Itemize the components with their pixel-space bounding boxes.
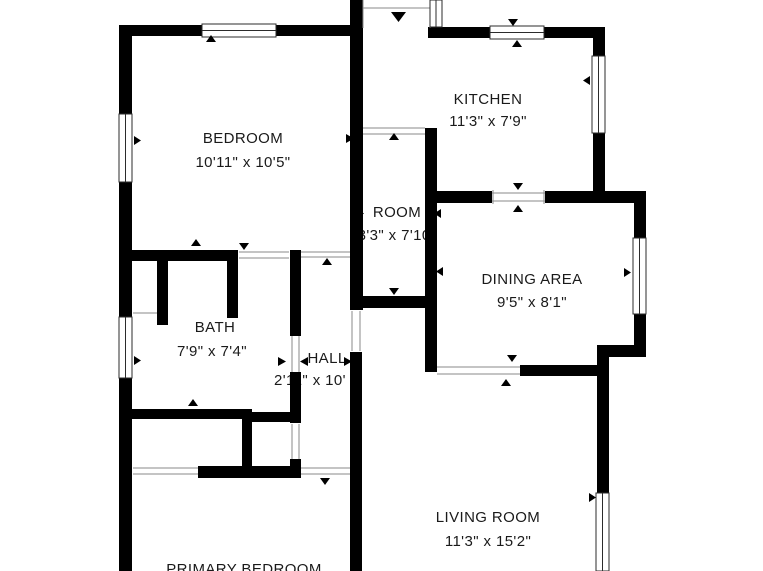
kitchen-dining-arrow-down [513,183,523,190]
wall-living-right [597,345,609,494]
wall-room-bottom [350,296,437,308]
opening-closet-door [292,424,299,459]
bath-bottom-arrow-up [188,399,198,406]
opening-bedroom-hall [301,250,350,259]
opening-hall-living-door [352,311,360,351]
opening-dining-living [437,367,520,374]
wall-closet-bottom [198,466,301,478]
room-label-kitchen: KITCHEN [454,91,523,108]
wall-closet-top [252,412,301,422]
room-dims-dining: 9'5" x 8'1" [497,294,567,311]
room-label-hall: HALL [307,350,346,367]
opening-bath-door [292,336,299,372]
wall-bedroom-bottom [119,250,238,261]
bath-door-arrow-down [239,243,249,250]
opening-bedroom-bath-door [239,252,289,258]
kitchen-window-arrow-down [508,19,518,26]
wall-left-exterior [119,25,132,571]
wall-dining-living-divider [520,365,598,376]
living-window-arrow-right [589,493,596,502]
kitchen-dining-arrow-up [513,205,523,212]
room-label-living: LIVING ROOM [436,509,540,526]
bedroom-hall-arrow-up [322,258,332,265]
room-dims-living: 11'3" x 15'2" [445,533,531,550]
room-dims-bath: 7'9" x 7'4" [177,343,247,360]
opening-hall-primary [301,466,350,476]
dining-living-arrow-up [501,379,511,386]
wall-center-vertical [350,0,363,310]
window-dining-right [633,238,646,314]
bedroom-bottom-arrow-up [191,239,201,246]
hall-bath-door-arrow-right [278,357,286,366]
window-living-right [596,493,609,571]
left-lower-window-arrow-right [134,356,141,365]
wall-closet-divider [242,409,252,467]
wall-bath-stub-right [227,250,238,318]
floor-plan: BEDROOM 10'11" x 10'5" KITCHEN 11'3" x 7… [0,0,763,571]
window-kitchen-right [592,56,605,133]
room-label-bath: BATH [195,319,236,336]
floor-plan-svg: BEDROOM 10'11" x 10'5" KITCHEN 11'3" x 7… [0,0,763,571]
room-label-primary-bedroom: PRIMARY BEDROOM [166,561,321,571]
hall-primary-arrow-down [320,478,330,485]
wall-bath-stub-left [157,250,168,325]
wall-bath-bottom [119,409,245,419]
hall-bath-door-arrow-left [300,357,308,366]
cased-openings [133,126,545,476]
kitchen-window-arrow-up [512,40,522,47]
left-upper-window-arrow-right [134,136,141,145]
window-kitchen-top [490,26,544,39]
kitchen-right-window-arrow-left [583,76,590,85]
opening-kitchen-dining [492,190,545,204]
dining-living-arrow-down [507,355,517,362]
wall-hall-left-upper [290,250,301,336]
room-label-dining: DINING AREA [481,271,582,288]
room-dims-room: 3'3" x 7'10" [358,227,437,244]
room-label-bedroom: BEDROOM [203,130,283,147]
room-dims-kitchen: 11'3" x 7'9" [449,113,527,130]
dining-window-arrow-right [624,268,631,277]
opening-closet-bifold [133,466,198,476]
entry-door-arrow-down [391,12,406,22]
wall-room-right [425,128,437,372]
room-labels: BEDROOM 10'11" x 10'5" KITCHEN 11'3" x 7… [166,91,582,571]
wall-primary-living-divider [350,352,362,571]
window-left-upper [119,114,132,182]
room-label-room: ROOM [373,204,421,221]
room-bottom-door-arrow-down [389,288,399,295]
room-dims-hall: 2'11" x 10' [274,372,346,389]
room-dims-bedroom: 10'11" x 10'5" [195,154,290,171]
dining-left-arrow-left [436,267,443,276]
window-bedroom-top [202,24,276,37]
window-left-lower [119,317,132,378]
